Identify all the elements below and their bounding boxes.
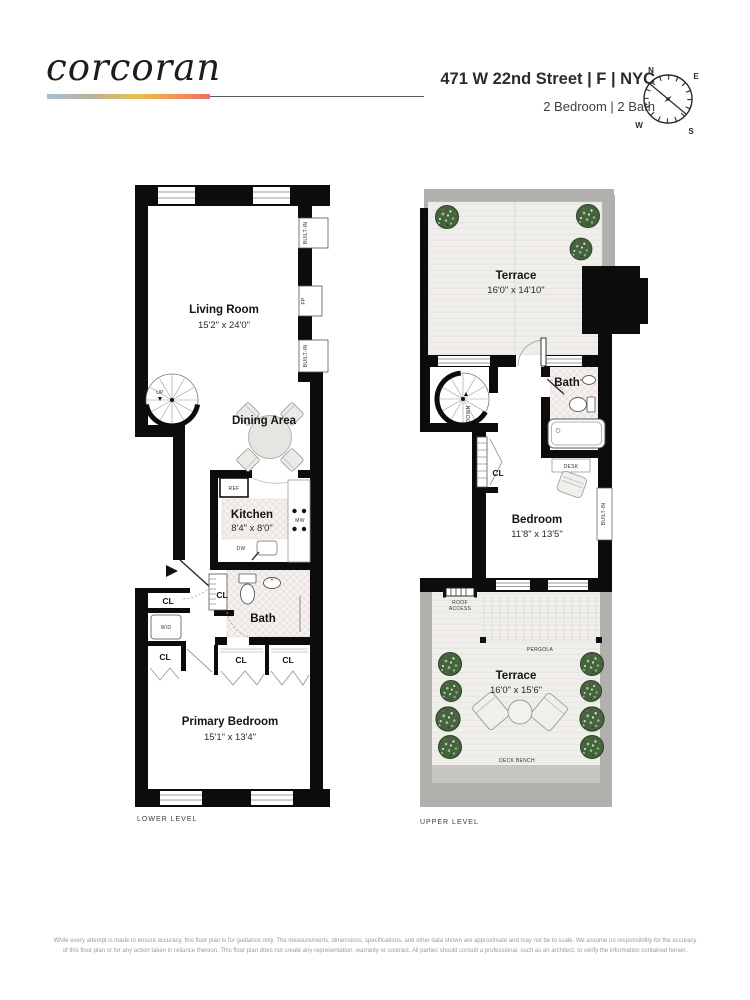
closet-label: CL — [492, 468, 503, 478]
bathtub — [548, 419, 605, 448]
bath-sink — [264, 578, 281, 589]
plant — [581, 736, 604, 759]
compass-north-label: N — [648, 66, 654, 75]
dining-area-label: Dining Area — [232, 415, 297, 427]
terrace-top-dims: 16'0" x 14'10" — [487, 285, 544, 296]
bath-label: Bath — [250, 613, 276, 625]
stair-up-label: UP — [156, 390, 164, 396]
terrace-main-dims: 16'0" x 15'6" — [490, 685, 542, 696]
stair-down-label: DOWN — [466, 405, 472, 422]
closet-door-fold — [150, 668, 179, 680]
upper-level-plan: DOWN CL — [418, 183, 654, 828]
disclaimer-line1: While every attempt is made to ensure ac… — [54, 936, 697, 946]
plant — [440, 680, 461, 701]
compass-west-label: W — [635, 121, 643, 130]
closet-label: CL — [235, 655, 246, 665]
microwave-label: MW — [295, 518, 304, 524]
terrace-top-label: Terrace — [496, 270, 537, 282]
desk-label: DESK — [564, 464, 579, 470]
deck-bench — [432, 765, 600, 783]
closet-label: CL — [216, 590, 227, 600]
primary-bedroom-dims: 15'1" x 13'4" — [204, 732, 256, 743]
plant — [580, 707, 604, 731]
lower-level-plan: BUILT-IN FP BUILT-IN UP — [133, 180, 335, 828]
plant — [577, 205, 600, 228]
terrace-main-label: Terrace — [496, 670, 537, 682]
roof-access-ladder — [443, 587, 477, 598]
floorplan-page: corcoran 471 W 22nd Street | F | NYC 2 B… — [0, 0, 750, 1000]
bedroom-dims: 11'8" x 13'5" — [511, 529, 562, 540]
brand-gradient-bar — [47, 94, 210, 99]
closet-label: CL — [282, 655, 293, 665]
desk-chair — [556, 470, 588, 499]
terrace-table — [508, 700, 532, 724]
built-in-label: BUILT-IN — [303, 345, 309, 368]
entry-arrow-icon — [166, 565, 178, 577]
compass-rose — [644, 75, 692, 123]
built-in-label: BUILT-IN — [601, 503, 607, 526]
kitchen-dims: 8'4" x 8'0" — [231, 523, 273, 534]
built-in-label: BUILT-IN — [303, 222, 309, 245]
kitchen-sink — [252, 541, 277, 560]
disclaimer: While every attempt is made to ensure ac… — [54, 936, 697, 956]
primary-bedroom-label: Primary Bedroom — [182, 716, 279, 728]
address: 471 W 22nd Street | F | NYC — [440, 70, 655, 89]
living-room-label: Living Room — [189, 304, 259, 316]
compass-icon: N E W S — [628, 55, 708, 139]
closet-label: CL — [159, 652, 170, 662]
toilet — [239, 574, 256, 604]
plant — [570, 238, 592, 260]
corcoran-logo: corcoran — [46, 46, 221, 89]
upper-bath-floor — [550, 367, 598, 421]
plant — [439, 736, 462, 759]
upper-closet — [477, 437, 502, 487]
roof-access-label: ACCESS — [449, 606, 472, 612]
toilet — [570, 397, 596, 412]
entry-door — [180, 560, 210, 599]
disclaimer-line2: of this floor plan or for any action tak… — [54, 946, 697, 956]
kitchen-label: Kitchen — [231, 509, 273, 521]
pergola-label: PERGOLA — [527, 647, 554, 653]
spiral-stair-down — [437, 373, 489, 425]
spiral-stair-up — [146, 374, 198, 426]
lower-level-caption: LOWER LEVEL — [137, 816, 197, 823]
plant — [439, 653, 462, 676]
upper-bath-label: Bath — [554, 377, 580, 389]
washer-dryer-label: W/D — [161, 625, 172, 631]
plant — [581, 653, 604, 676]
header-rule — [210, 96, 424, 98]
compass-east-label: E — [693, 72, 699, 81]
bedroom-label: Bedroom — [512, 514, 562, 526]
compass-south-label: S — [688, 127, 694, 136]
plant — [436, 707, 460, 731]
upper-level-caption: UPPER LEVEL — [420, 819, 479, 826]
fireplace-label: FP — [301, 297, 307, 304]
refrigerator-label: REF — [229, 486, 240, 492]
deck-bench-label: DECK BENCH — [499, 758, 535, 764]
plant — [580, 680, 601, 701]
closet-rod — [220, 649, 308, 652]
dishwasher-label: DW — [237, 546, 246, 552]
closet-label: CL — [162, 596, 173, 606]
plant — [436, 206, 459, 229]
living-room-dims: 15'2" x 24'0" — [198, 320, 250, 331]
